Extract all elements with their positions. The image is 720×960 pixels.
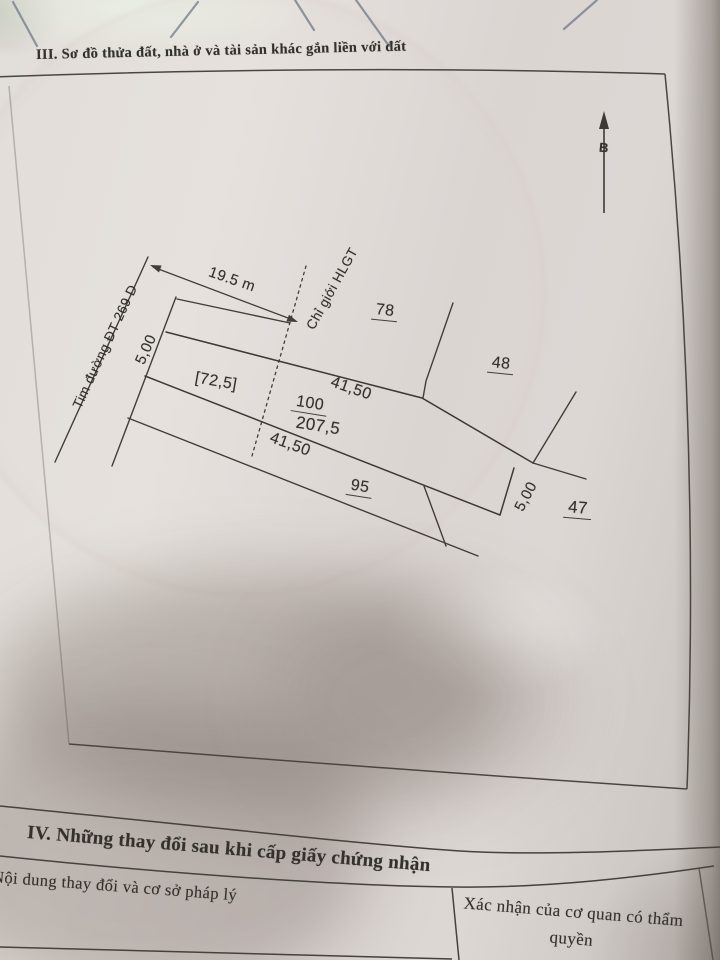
boundary-48-47 [533,392,576,463]
scanned-certificate-page: III. Sơ đồ thửa đất, nhà ở và tài sản kh… [0,0,720,960]
parcel-95-right-end [424,486,446,546]
dimension-arrowhead-left [150,265,162,273]
boundary-78-48 [423,303,453,398]
north-label: B [595,139,612,156]
frame-right-border [665,74,691,789]
frame-left-border [9,86,69,744]
road-edge-line [177,299,290,323]
frame-bottom-border [69,744,687,789]
table-header-bottom-rule [0,947,452,959]
table-right-border [699,868,713,960]
frame-top-border [0,70,665,77]
north-arrowhead [599,111,609,129]
label-parcel-47: 47 [552,496,604,520]
parcel-95-bottom-edge [128,418,478,556]
north-arrow [599,111,609,213]
void-hatch-marks [13,0,597,46]
